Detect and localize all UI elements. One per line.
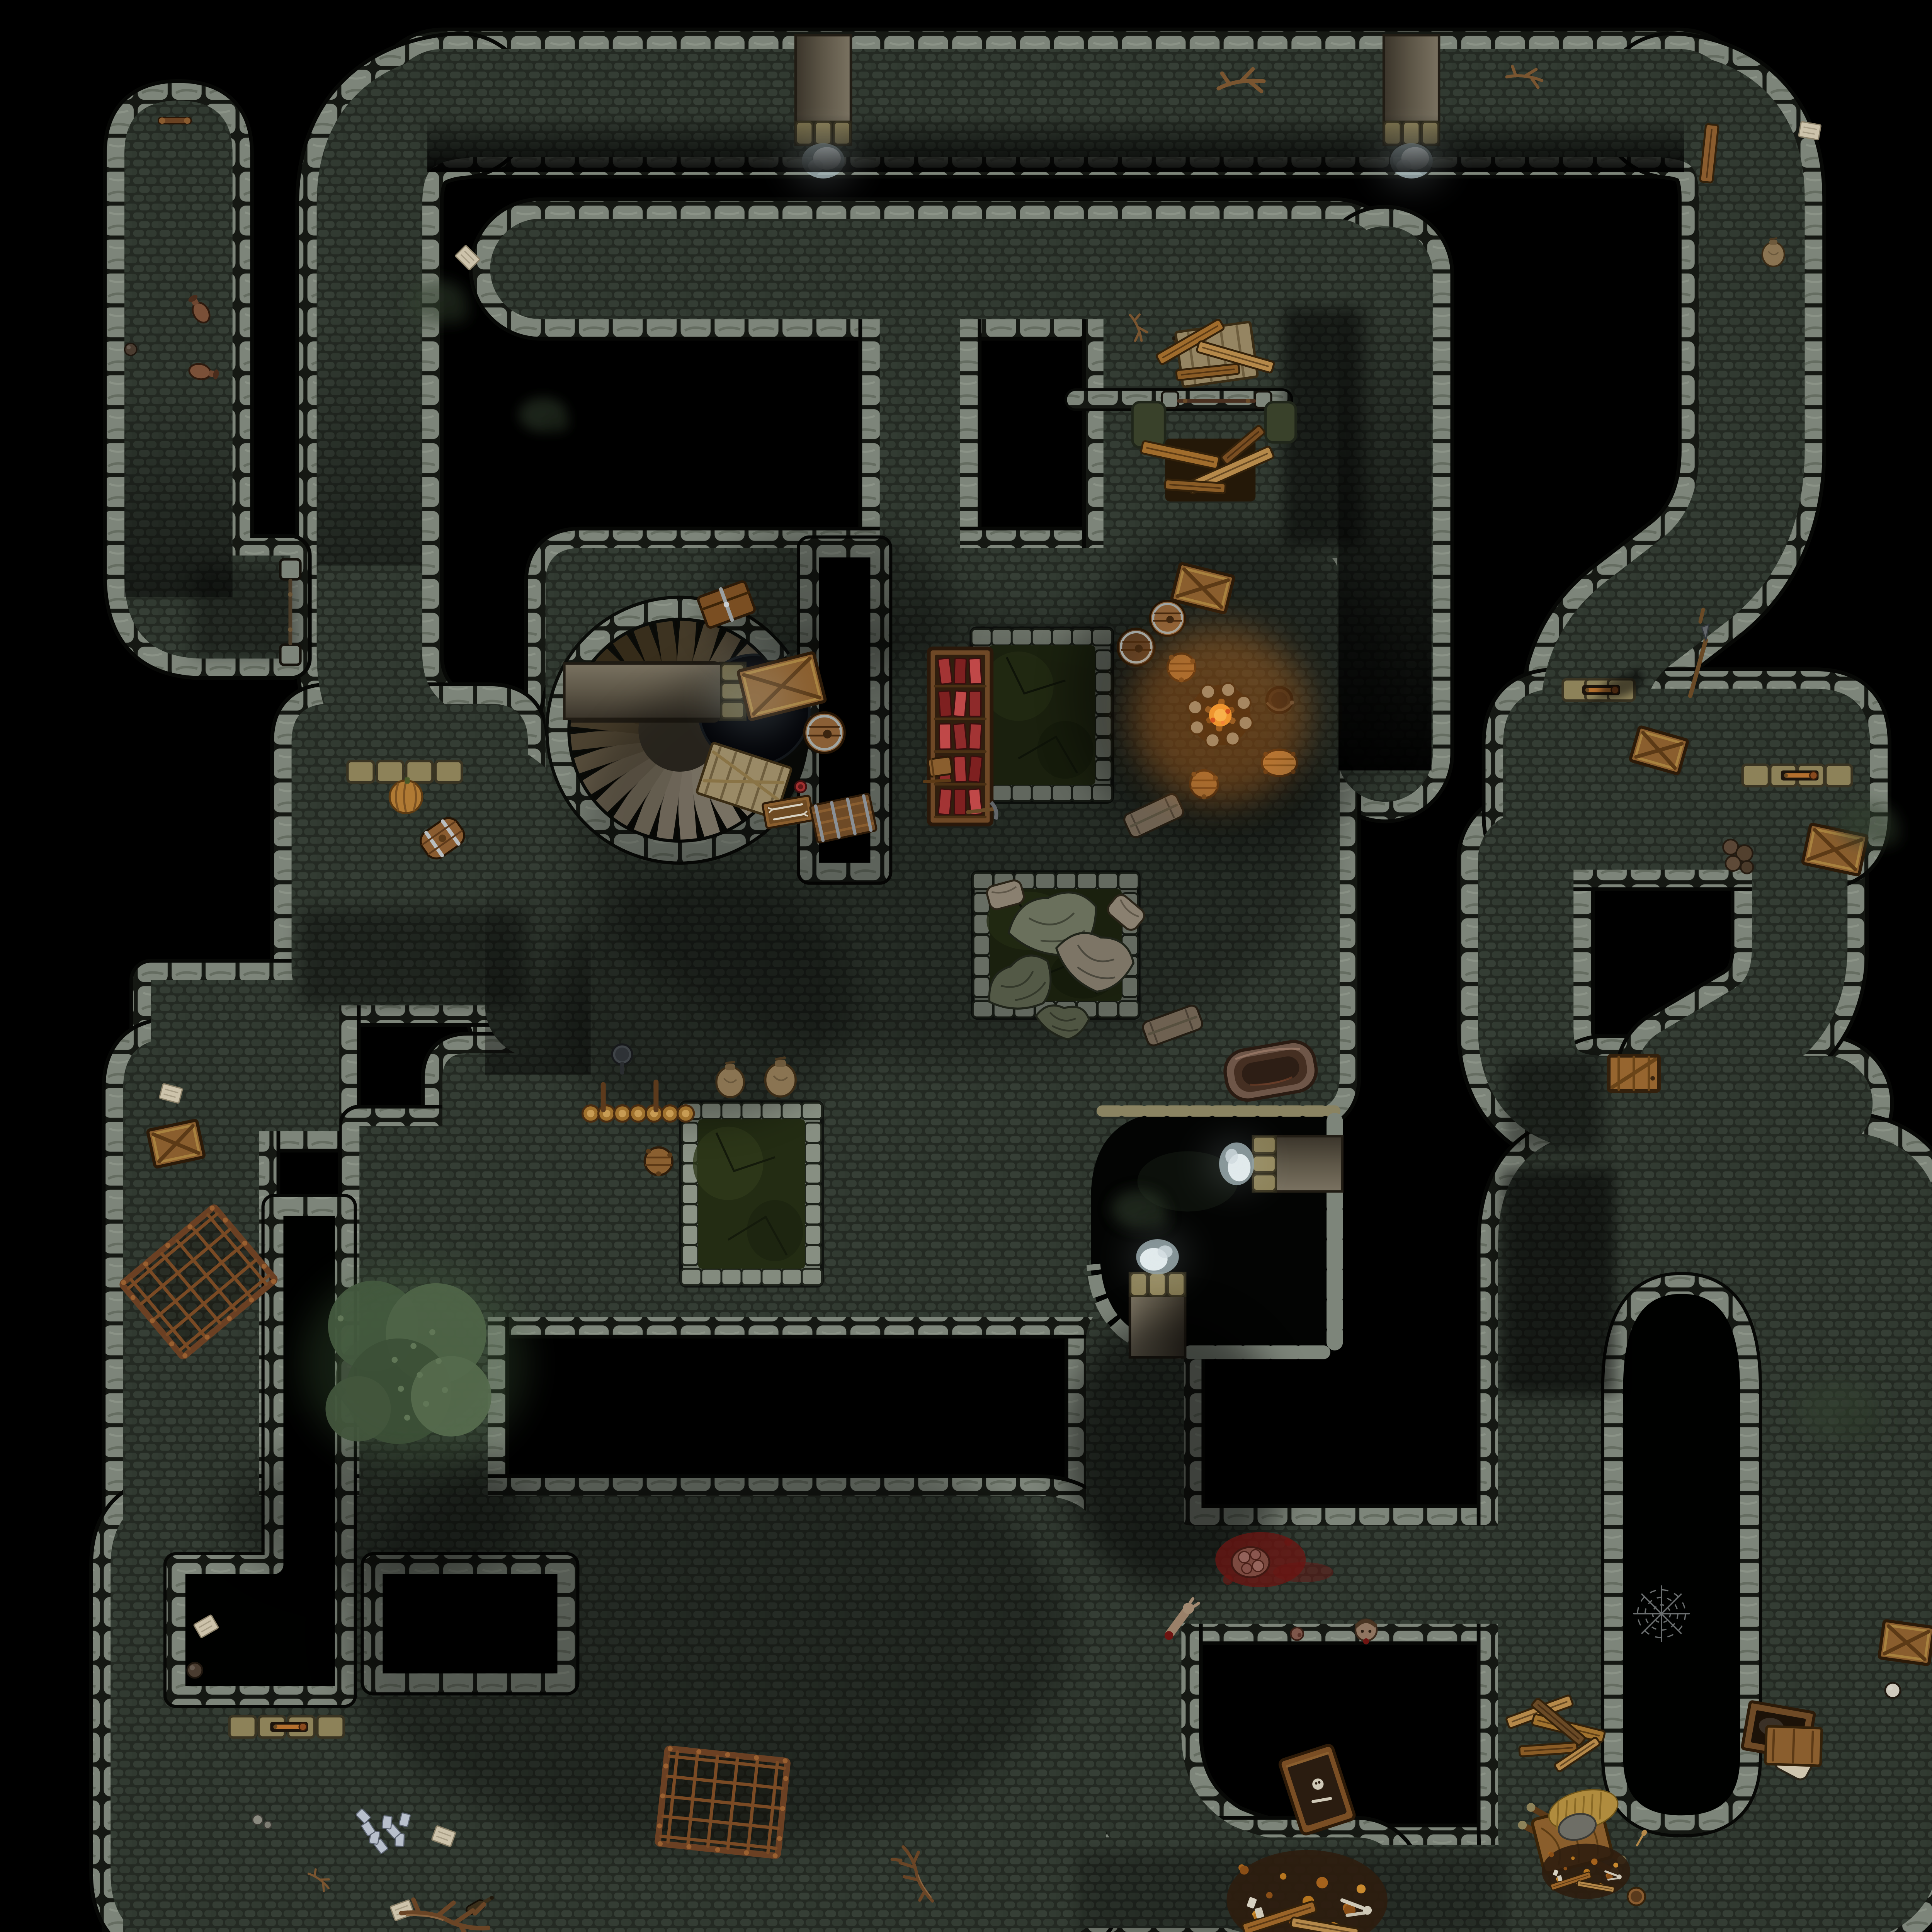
prop-paper [1799,122,1821,140]
g-shape [969,724,982,749]
prop-door [1609,1056,1659,1091]
ellipse-shape [1141,1208,1168,1228]
g-shape [969,691,981,716]
rect-shape [230,1716,256,1737]
g-shape [519,398,569,432]
rect-shape [347,761,374,782]
circle-shape [587,1110,595,1117]
glow-6 [1128,1232,1188,1282]
prop-hingebar [158,117,191,124]
prop-chunk [1291,1628,1303,1640]
prop-barreltop [804,713,845,753]
circle-shape [1298,1633,1301,1637]
rect-shape [1769,240,1777,245]
rect-shape [954,658,966,684]
shadow-17 [317,314,422,566]
prop-barreltop [1150,601,1185,636]
circle-shape [1563,1867,1567,1870]
shadow-13 [299,910,525,1005]
line-shape [1770,238,1777,240]
rect-shape [1274,1136,1342,1191]
rect-shape [939,789,952,815]
circle-shape [1549,1852,1554,1857]
ellipse-shape [1232,1547,1270,1577]
circle-shape [190,1665,195,1670]
circle-shape [1741,861,1753,874]
rect-shape [721,1269,742,1285]
line-shape [1812,1731,1813,1762]
circle-shape [1291,769,1296,774]
rect-shape [682,1122,698,1143]
rect-shape [682,1225,698,1245]
circle-shape [1242,1563,1252,1573]
shadow-0 [427,114,1684,172]
prop-bookshelf [929,648,992,824]
rect-shape [1384,35,1439,123]
rect-shape [435,761,462,782]
circle-shape [823,730,832,738]
circle-shape [253,1815,263,1825]
circle-shape [634,1110,642,1117]
circle-shape [1617,1874,1622,1879]
rect-shape [682,1184,698,1204]
rect-shape [802,1103,822,1119]
circle-shape [273,1725,277,1729]
rect-shape [682,1204,698,1225]
rect-shape [969,724,982,749]
rect-shape [280,645,300,665]
prop-grate [655,1746,791,1859]
rect-shape [377,761,403,782]
glow-3 [1379,136,1444,186]
circle-shape [1183,399,1187,403]
circle-shape [1591,1859,1597,1865]
g-shape [953,723,967,750]
ellipse-shape [1841,1408,1883,1440]
prop-web [1634,1586,1689,1641]
circle-shape [187,1663,202,1678]
rect-shape [954,756,967,782]
circle-shape [646,1149,651,1154]
circle-shape [1585,688,1589,692]
circle-shape [682,1110,690,1117]
ellipse-shape [1870,823,1900,846]
circle-shape [1784,774,1788,777]
rect-shape [782,1269,802,1285]
rect-shape [1743,765,1769,786]
rect-shape [653,1080,658,1112]
g-shape [954,789,966,815]
rect-shape [938,658,952,684]
circle-shape [1810,772,1818,779]
g-shape [968,756,982,782]
rect-shape [805,1163,821,1184]
rect-shape [939,691,952,717]
circle-shape [1284,1538,1292,1546]
rect-shape [782,1103,802,1119]
prop-bench [1743,765,1852,786]
circle-shape [264,1821,272,1829]
rect-shape [805,1184,821,1204]
rect-shape [406,761,432,782]
rect-shape [725,1064,735,1070]
ellipse-shape [747,1200,803,1261]
circle-shape [288,592,293,597]
circle-shape [1571,1856,1575,1860]
glow-0 [1133,627,1308,803]
circle-shape [1363,1906,1372,1915]
rect-shape [701,1269,721,1285]
rect-shape [280,559,300,579]
circle-shape [615,1048,629,1061]
rect-shape [405,777,410,784]
circle-shape [1266,1892,1273,1898]
g-shape [1765,1726,1821,1766]
prop-ball [125,344,137,355]
circle-shape [656,1171,661,1176]
rect-shape [1825,765,1852,786]
circle-shape [1650,1076,1655,1081]
circle-shape [1246,399,1250,403]
g-shape [954,691,967,717]
rect-shape [968,756,982,782]
glow-1 [302,1263,528,1464]
circle-shape [1363,1638,1369,1645]
g-shape [954,756,967,782]
g-shape [1634,1586,1689,1641]
prop-moss [519,398,569,432]
circle-shape [125,344,137,355]
circle-shape [1166,616,1174,624]
rect-shape [805,1204,821,1225]
rect-shape [805,1122,821,1143]
prop-bowl [1628,1888,1645,1905]
circle-shape [619,1110,626,1117]
rect-shape [682,1245,698,1265]
rect-shape [775,1060,786,1067]
line-shape [1773,1730,1774,1760]
line-shape [1793,1730,1794,1762]
void-loop-island [1614,1284,1749,1825]
prop-barreltop [1117,629,1155,666]
prop-debris [1542,1844,1630,1899]
ellipse-shape [439,300,469,323]
rect-shape [1265,402,1296,442]
glow-4 [711,661,797,736]
g-shape [406,280,469,323]
circle-shape [1361,1630,1364,1633]
g-shape [939,691,952,717]
g-shape [382,1816,392,1829]
rect-shape [954,789,966,815]
circle-shape [127,345,131,349]
ellipse-shape [1273,1562,1333,1582]
glow-2 [791,136,856,186]
circle-shape [1135,645,1143,652]
prop-mug [795,781,806,792]
prop-crate [148,1120,205,1167]
rect-shape [620,1062,624,1075]
circle-shape [667,1153,672,1158]
feature-algae-pool-3 [681,1102,822,1286]
rect-shape [805,1143,821,1163]
rect-shape [382,1816,392,1829]
circle-shape [1250,1549,1260,1560]
circle-shape [1240,1866,1248,1874]
shadow-8 [1502,1169,1615,1395]
dungeon-map-stage [0,0,1932,1932]
prop-ball [187,1663,202,1678]
circle-shape [1291,1628,1303,1640]
rect-shape [954,691,967,717]
line-shape [776,1058,784,1060]
g-shape [939,789,952,815]
rect-shape [1133,402,1165,447]
circle-shape [1223,1575,1233,1585]
circle-shape [1368,1630,1371,1633]
circle-shape [288,628,293,632]
prop-moss [406,280,469,323]
rect-shape [805,1225,821,1245]
circle-shape [1238,1551,1250,1563]
ellipse-shape [693,1127,763,1200]
prop-ball [1885,1683,1900,1698]
circle-shape [1252,1560,1264,1571]
rect-shape [796,35,851,123]
shadow-10 [1504,1056,1602,1151]
g-shape [939,724,951,749]
ellipse-shape [545,414,569,432]
rect-shape [601,1082,606,1112]
line-shape [726,1062,734,1063]
circle-shape [1280,1873,1286,1880]
circle-shape [159,117,165,124]
rect-shape [317,1716,344,1737]
rect-shape [802,1269,822,1285]
shadow-15 [226,1439,528,1590]
g-shape [938,658,952,684]
shadow-6 [124,383,233,597]
g-shape [954,658,966,684]
circle-shape [1357,1884,1366,1893]
prop-stool [645,1148,673,1177]
rect-shape [742,1269,762,1285]
rect-shape [953,723,967,750]
circle-shape [666,1110,674,1117]
circle-shape [1316,1877,1328,1888]
glow-5 [1204,1139,1264,1189]
rect-shape [969,691,981,716]
circle-shape [1613,1863,1618,1868]
rect-shape [939,724,951,749]
rect-shape [1799,122,1821,140]
circle-shape [1885,1683,1900,1698]
shadow-12 [553,874,855,1125]
prop-crate [1879,1621,1932,1665]
circle-shape [798,784,803,789]
rect-shape [681,1269,701,1285]
circle-shape [1888,1685,1893,1690]
rect-shape [762,1269,782,1285]
dungeon-map [0,0,1932,1932]
circle-shape [1726,856,1741,871]
circle-shape [299,1723,307,1731]
rect-shape [969,658,982,684]
rect-shape [805,1245,821,1265]
circle-shape [184,117,190,124]
circle-shape [1631,1891,1642,1902]
g-shape [969,658,982,684]
